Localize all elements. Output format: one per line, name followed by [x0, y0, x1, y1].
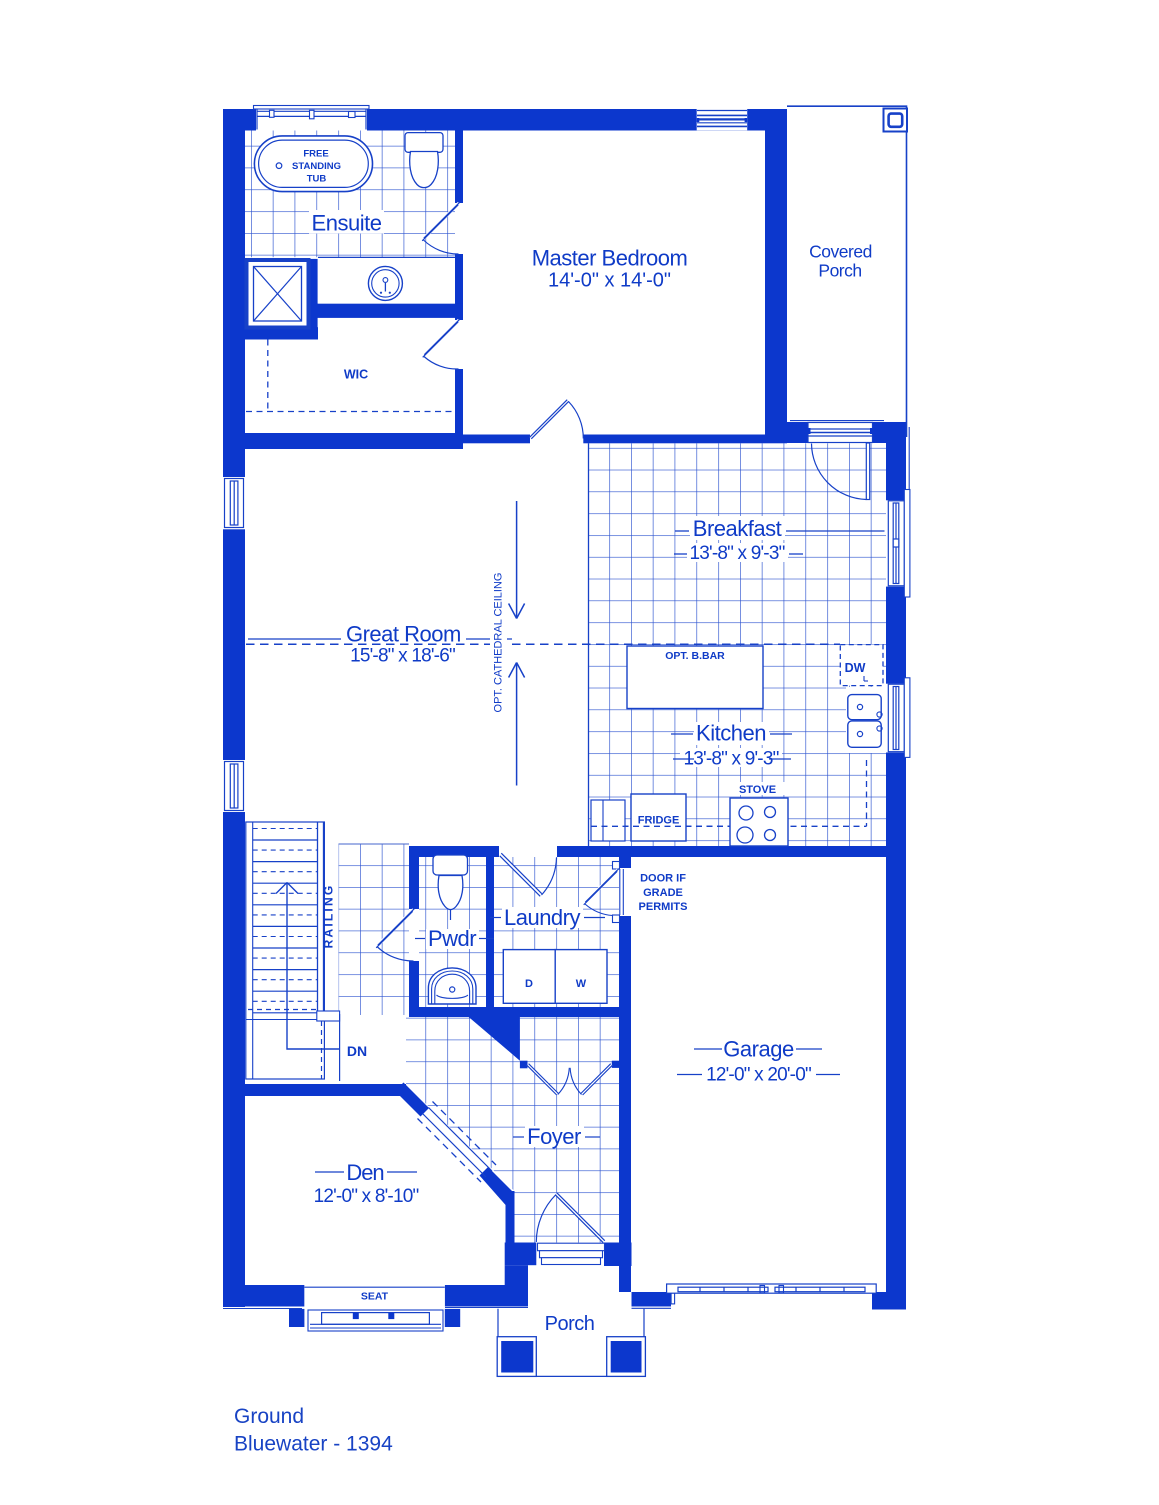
- svg-text:RAILING: RAILING: [322, 884, 336, 949]
- svg-text:Kitchen: Kitchen: [696, 721, 766, 746]
- svg-text:WIC: WIC: [344, 368, 368, 382]
- svg-text:Foyer: Foyer: [527, 1124, 581, 1149]
- svg-text:W: W: [576, 978, 587, 990]
- svg-text:STOVE: STOVE: [739, 784, 776, 796]
- svg-text:PERMITS: PERMITS: [639, 901, 688, 913]
- svg-text:15'-8" x 18'-6": 15'-8" x 18'-6": [350, 646, 455, 667]
- svg-text:Covered: Covered: [809, 242, 872, 262]
- svg-text:12'-0" x 8'-10": 12'-0" x 8'-10": [314, 1186, 419, 1207]
- svg-text:STANDING: STANDING: [292, 161, 341, 172]
- svg-text:SEAT: SEAT: [361, 1291, 389, 1303]
- svg-text:FRIDGE: FRIDGE: [638, 815, 680, 827]
- svg-text:Porch: Porch: [545, 1313, 595, 1335]
- svg-text:Pwdr: Pwdr: [428, 926, 476, 951]
- svg-text:OPT. CATHEDRAL CEILING: OPT. CATHEDRAL CEILING: [493, 573, 505, 713]
- svg-text:OPT. B.BAR: OPT. B.BAR: [665, 650, 725, 662]
- svg-text:13'-8" x 9'-3": 13'-8" x 9'-3": [689, 543, 784, 564]
- svg-text:Laundry: Laundry: [504, 905, 581, 930]
- svg-text:Breakfast: Breakfast: [693, 516, 782, 541]
- svg-text:Bluewater - 1394: Bluewater - 1394: [234, 1433, 393, 1456]
- svg-text:Ground: Ground: [234, 1405, 304, 1428]
- svg-text:FREE: FREE: [303, 149, 328, 160]
- svg-text:Porch: Porch: [818, 261, 861, 281]
- svg-text:GRADE: GRADE: [643, 887, 683, 899]
- svg-text:Master Bedroom: Master Bedroom: [532, 246, 688, 271]
- svg-text:Den: Den: [346, 1160, 383, 1185]
- svg-text:DN: DN: [347, 1043, 367, 1059]
- svg-text:DW: DW: [845, 661, 866, 675]
- svg-text:DOOR IF: DOOR IF: [640, 873, 686, 885]
- svg-text:D: D: [525, 978, 533, 990]
- svg-text:Great Room: Great Room: [346, 622, 461, 647]
- svg-text:Ensuite: Ensuite: [312, 210, 382, 235]
- svg-text:12'-0" x 20'-0": 12'-0" x 20'-0": [706, 1065, 811, 1086]
- svg-text:13'-8" x 9'-3": 13'-8" x 9'-3": [683, 749, 778, 770]
- svg-text:Garage: Garage: [723, 1037, 794, 1062]
- svg-text:14'-0" x 14'-0": 14'-0" x 14'-0": [548, 270, 671, 292]
- svg-text:TUB: TUB: [307, 174, 327, 185]
